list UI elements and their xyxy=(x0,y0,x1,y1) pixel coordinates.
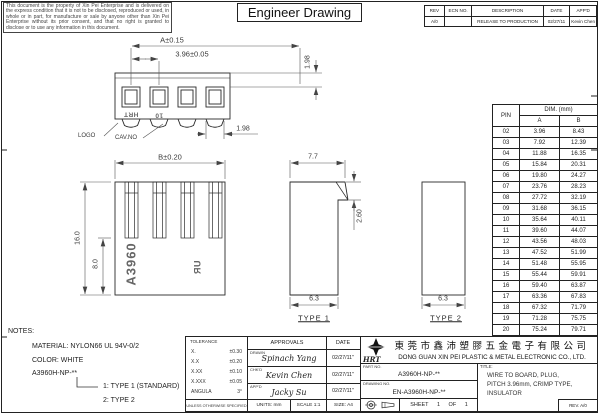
dim-a-cell: 59.40 xyxy=(520,281,560,292)
table-row: 1971.2875.75 xyxy=(493,314,598,325)
dim-total-height-label: 16.0 xyxy=(75,231,82,245)
dim-63-type1-label: 6.3 xyxy=(309,296,319,303)
dim-b-cell: 51.99 xyxy=(560,248,598,259)
dim-a-cell: 11.88 xyxy=(520,149,560,160)
dim-b-cell: 48.03 xyxy=(560,237,598,248)
dim-b-cell: 59.91 xyxy=(560,270,598,281)
table-row: 037.9212.39 xyxy=(493,138,598,149)
dim-b-cell: 71.79 xyxy=(560,303,598,314)
rev-badge: REV. A/0 xyxy=(558,399,598,412)
dim-b-cell: 28.23 xyxy=(560,182,598,193)
dim-77-label: 7.7 xyxy=(308,154,318,161)
table-row: 1035.6440.11 xyxy=(493,215,598,226)
table-row: 0411.8816.35 xyxy=(493,149,598,160)
tol-key-2: X.XX xyxy=(191,370,202,375)
unless-otherwise-note: UNLESS OTHERWISE SPECIFIED xyxy=(185,399,248,412)
appd-signature: Jacky Su xyxy=(254,386,324,399)
dim-b-cell: 79.71 xyxy=(560,325,598,336)
tol-key-0: X. xyxy=(191,350,196,355)
logo-marking: HRT xyxy=(124,110,139,117)
pin-cell: 10 xyxy=(493,215,520,226)
col-a-header: A xyxy=(520,116,560,127)
pin-cell: 18 xyxy=(493,303,520,314)
table-row: 2075.2479.71 xyxy=(493,325,598,336)
dim-b-cell: 67.83 xyxy=(560,292,598,303)
dim-a-cell: 15.84 xyxy=(520,160,560,171)
part-no-block: PART NO. A3960H-NP-** xyxy=(360,363,478,381)
note-option-2: 2: TYPE 2 xyxy=(103,397,135,404)
dim-b-cell: 63.87 xyxy=(560,281,598,292)
engineering-drawing-sheet: This document is the property of Xin Pei… xyxy=(0,0,600,414)
pin-cell: 11 xyxy=(493,226,520,237)
dim-a-cell: 31.68 xyxy=(520,204,560,215)
front-view-dimensions xyxy=(80,160,225,295)
note-color: COLOR: WHITE xyxy=(32,357,83,364)
pin-dimension-table: PIN DIM. (mm) A B 023.968.43 037.9212.39… xyxy=(492,104,598,336)
table-row: 1659.4063.87 xyxy=(493,281,598,292)
dim-b-cell: 24.27 xyxy=(560,171,598,182)
pin-cell: 07 xyxy=(493,182,520,193)
company-name-en: DONG GUAN XIN PEI PLASTIC & METAL ELECTR… xyxy=(389,352,595,363)
pin-cell: 14 xyxy=(493,259,520,270)
approvals-heading: APPROVALS xyxy=(248,337,326,349)
dim-a-cell: 71.28 xyxy=(520,314,560,325)
dim-a-cell: 23.76 xyxy=(520,182,560,193)
logo-callout-label: LOGO xyxy=(78,133,95,139)
title-line-3: INSULATOR xyxy=(487,391,522,397)
approvals-block: APPROVALS DATE DRAWN Spinach Yang 02/27/… xyxy=(247,336,361,400)
dim-inner-height-label: 8.0 xyxy=(93,259,100,269)
table-row: 0619.8024.27 xyxy=(493,171,598,182)
pin-cell: 08 xyxy=(493,193,520,204)
table-row: 1555.4459.91 xyxy=(493,270,598,281)
drawn-signature: Spinach Yang xyxy=(254,352,324,365)
pin-cell: 19 xyxy=(493,314,520,325)
chkd-date: 02/27/11" xyxy=(326,366,360,383)
dim-mm-header: DIM. (mm) xyxy=(520,105,598,116)
dim-b-cell: 36.15 xyxy=(560,204,598,215)
dim-a-cell: 19.80 xyxy=(520,171,560,182)
type1-label: TYPE 1 xyxy=(298,314,330,322)
notes-branch-line xyxy=(77,377,98,387)
sheet-number: SHEET 1 OF 1 xyxy=(399,399,479,411)
type1-body xyxy=(290,182,348,295)
dim-a-cell: 3.96 xyxy=(520,127,560,138)
table-row: 0723.7628.23 xyxy=(493,182,598,193)
company-logo-star-icon xyxy=(364,338,388,356)
table-row: 0515.8420.31 xyxy=(493,160,598,171)
pin-cell: 03 xyxy=(493,138,520,149)
table-row: 1139.6044.07 xyxy=(493,226,598,237)
dim-a-cell: 55.44 xyxy=(520,270,560,281)
dim-b-cell: 20.31 xyxy=(560,160,598,171)
dim-b-cell: 8.43 xyxy=(560,127,598,138)
dim-width-label: 1.98 xyxy=(236,126,250,133)
table-row: 0931.6836.15 xyxy=(493,204,598,215)
pin-cell: 13 xyxy=(493,248,520,259)
pin-cell: 17 xyxy=(493,292,520,303)
table-header-row: PIN DIM. (mm) xyxy=(493,105,598,116)
tol-key-1: X.X xyxy=(191,360,199,365)
company-logo-text: HRT xyxy=(363,356,381,363)
tol-val-1: ±0.20 xyxy=(230,360,242,365)
title-label: TITLE: xyxy=(480,365,493,369)
dim-a-cell: 47.52 xyxy=(520,248,560,259)
tol-val-4: 3° xyxy=(237,390,242,395)
dim-63-type2-label: 6.3 xyxy=(438,296,448,303)
note-part-code: A3960H-NP-** xyxy=(32,370,77,377)
tolerance-block: TOLERANCE X. ±0.30 X.X ±0.20 X.XX ±0.10 … xyxy=(185,336,248,400)
dim-a-cell: 7.92 xyxy=(520,138,560,149)
dim-b-cell: 44.07 xyxy=(560,226,598,237)
dim-pitch-label: 3.96±0.05 xyxy=(175,50,208,58)
table-row: 1763.3667.83 xyxy=(493,292,598,303)
note-option-1: 1: TYPE 1 (STANDARD) xyxy=(103,383,179,390)
dim-b-cell: 16.35 xyxy=(560,149,598,160)
dim-a-cell: 27.72 xyxy=(520,193,560,204)
pin-cell: 16 xyxy=(493,281,520,292)
dim-b-cell: 12.39 xyxy=(560,138,598,149)
pin-cell: 12 xyxy=(493,237,520,248)
col-b-header: B xyxy=(560,116,598,127)
units-row: UNITS: mm SCALE 1:1 SIZE: A4 xyxy=(247,399,361,412)
dim-260-label: 2.60 xyxy=(357,209,364,223)
projection-sheet-block: SHEET 1 OF 1 xyxy=(360,398,478,412)
table-row: 0827.7232.19 xyxy=(493,193,598,204)
notes-heading: NOTES: xyxy=(8,328,34,335)
dim-a-cell: 43.56 xyxy=(520,237,560,248)
top-view-body xyxy=(115,73,230,127)
dim-a-cell: 51.48 xyxy=(520,259,560,270)
table-row: 1243.5648.03 xyxy=(493,237,598,248)
title-line-2: PITCH 3.96mm, CRIMP TYPE, xyxy=(487,382,572,388)
third-angle-projection-icon xyxy=(365,400,397,410)
table-row: 1347.5251.99 xyxy=(493,248,598,259)
tolerance-heading: TOLERANCE xyxy=(190,340,217,345)
pin-cell: 02 xyxy=(493,127,520,138)
size-cell: SIZE: A4 xyxy=(327,400,360,411)
dim-b-cell: 32.19 xyxy=(560,193,598,204)
dim-a-cell: 67.32 xyxy=(520,303,560,314)
company-name-cn: 東莞市鑫沛塑膠五金電子有限公司 xyxy=(389,338,595,351)
dim-a-cell: 39.60 xyxy=(520,226,560,237)
part-no-value: A3960H-NP-** xyxy=(361,368,477,380)
pin-cell: 20 xyxy=(493,325,520,336)
ul-recognized-marking: ЯU xyxy=(194,260,203,274)
type2-body xyxy=(422,182,465,295)
appd-date: 02/27/11" xyxy=(326,383,360,399)
pin-cell: 05 xyxy=(493,160,520,171)
pin-cell: 06 xyxy=(493,171,520,182)
table-row: 1451.4855.95 xyxy=(493,259,598,270)
title-line-1: WIRE TO BOARD, PLUG, xyxy=(487,373,559,379)
cav-no-callout-label: CAV.NO xyxy=(115,135,137,141)
scale-cell: SCALE 1:1 xyxy=(291,400,327,411)
tol-key-4: ANGULA xyxy=(191,390,212,395)
tol-key-3: X.XXX xyxy=(191,380,206,385)
company-block: HRT 東莞市鑫沛塑膠五金電子有限公司 DONG GUAN XIN PEI PL… xyxy=(360,336,598,364)
table-row: 023.968.43 xyxy=(493,127,598,138)
date-heading: DATE xyxy=(326,337,360,349)
dim-height-label: 1.98 xyxy=(305,55,312,69)
dim-a-cell: 75.24 xyxy=(520,325,560,336)
units-cell: UNITS: mm xyxy=(248,400,291,411)
chkd-signature: Kevin Chen xyxy=(254,369,324,382)
dim-b-cell: 75.75 xyxy=(560,314,598,325)
pin-cell: 04 xyxy=(493,149,520,160)
table-row: 1867.3271.79 xyxy=(493,303,598,314)
dim-a-label: A±0.15 xyxy=(160,36,184,44)
pin-cell: 15 xyxy=(493,270,520,281)
part-marking: A3960 xyxy=(125,242,138,285)
drawn-date: 02/27/11" xyxy=(326,349,360,366)
cav-marking: 10 xyxy=(155,111,163,118)
type2-label: TYPE 2 xyxy=(430,314,462,322)
dim-a-cell: 63.36 xyxy=(520,292,560,303)
pin-cell: 09 xyxy=(493,204,520,215)
tol-val-2: ±0.10 xyxy=(230,370,242,375)
tol-val-0: ±0.30 xyxy=(230,350,242,355)
dim-b-cell: 40.11 xyxy=(560,215,598,226)
note-material: MATERIAL: NYLON66 UL 94V-0/2 xyxy=(32,343,139,350)
dim-b-cell: 55.95 xyxy=(560,259,598,270)
dim-b-label: B±0.20 xyxy=(158,153,182,161)
dim-a-cell: 35.64 xyxy=(520,215,560,226)
tol-val-3: ±0.05 xyxy=(230,380,242,385)
pin-column-header: PIN xyxy=(493,105,520,127)
drawing-no-value: EN-A3960H-NP-** xyxy=(361,386,477,398)
drawing-no-block: DRAWING NO. EN-A3960H-NP-** xyxy=(360,380,478,399)
